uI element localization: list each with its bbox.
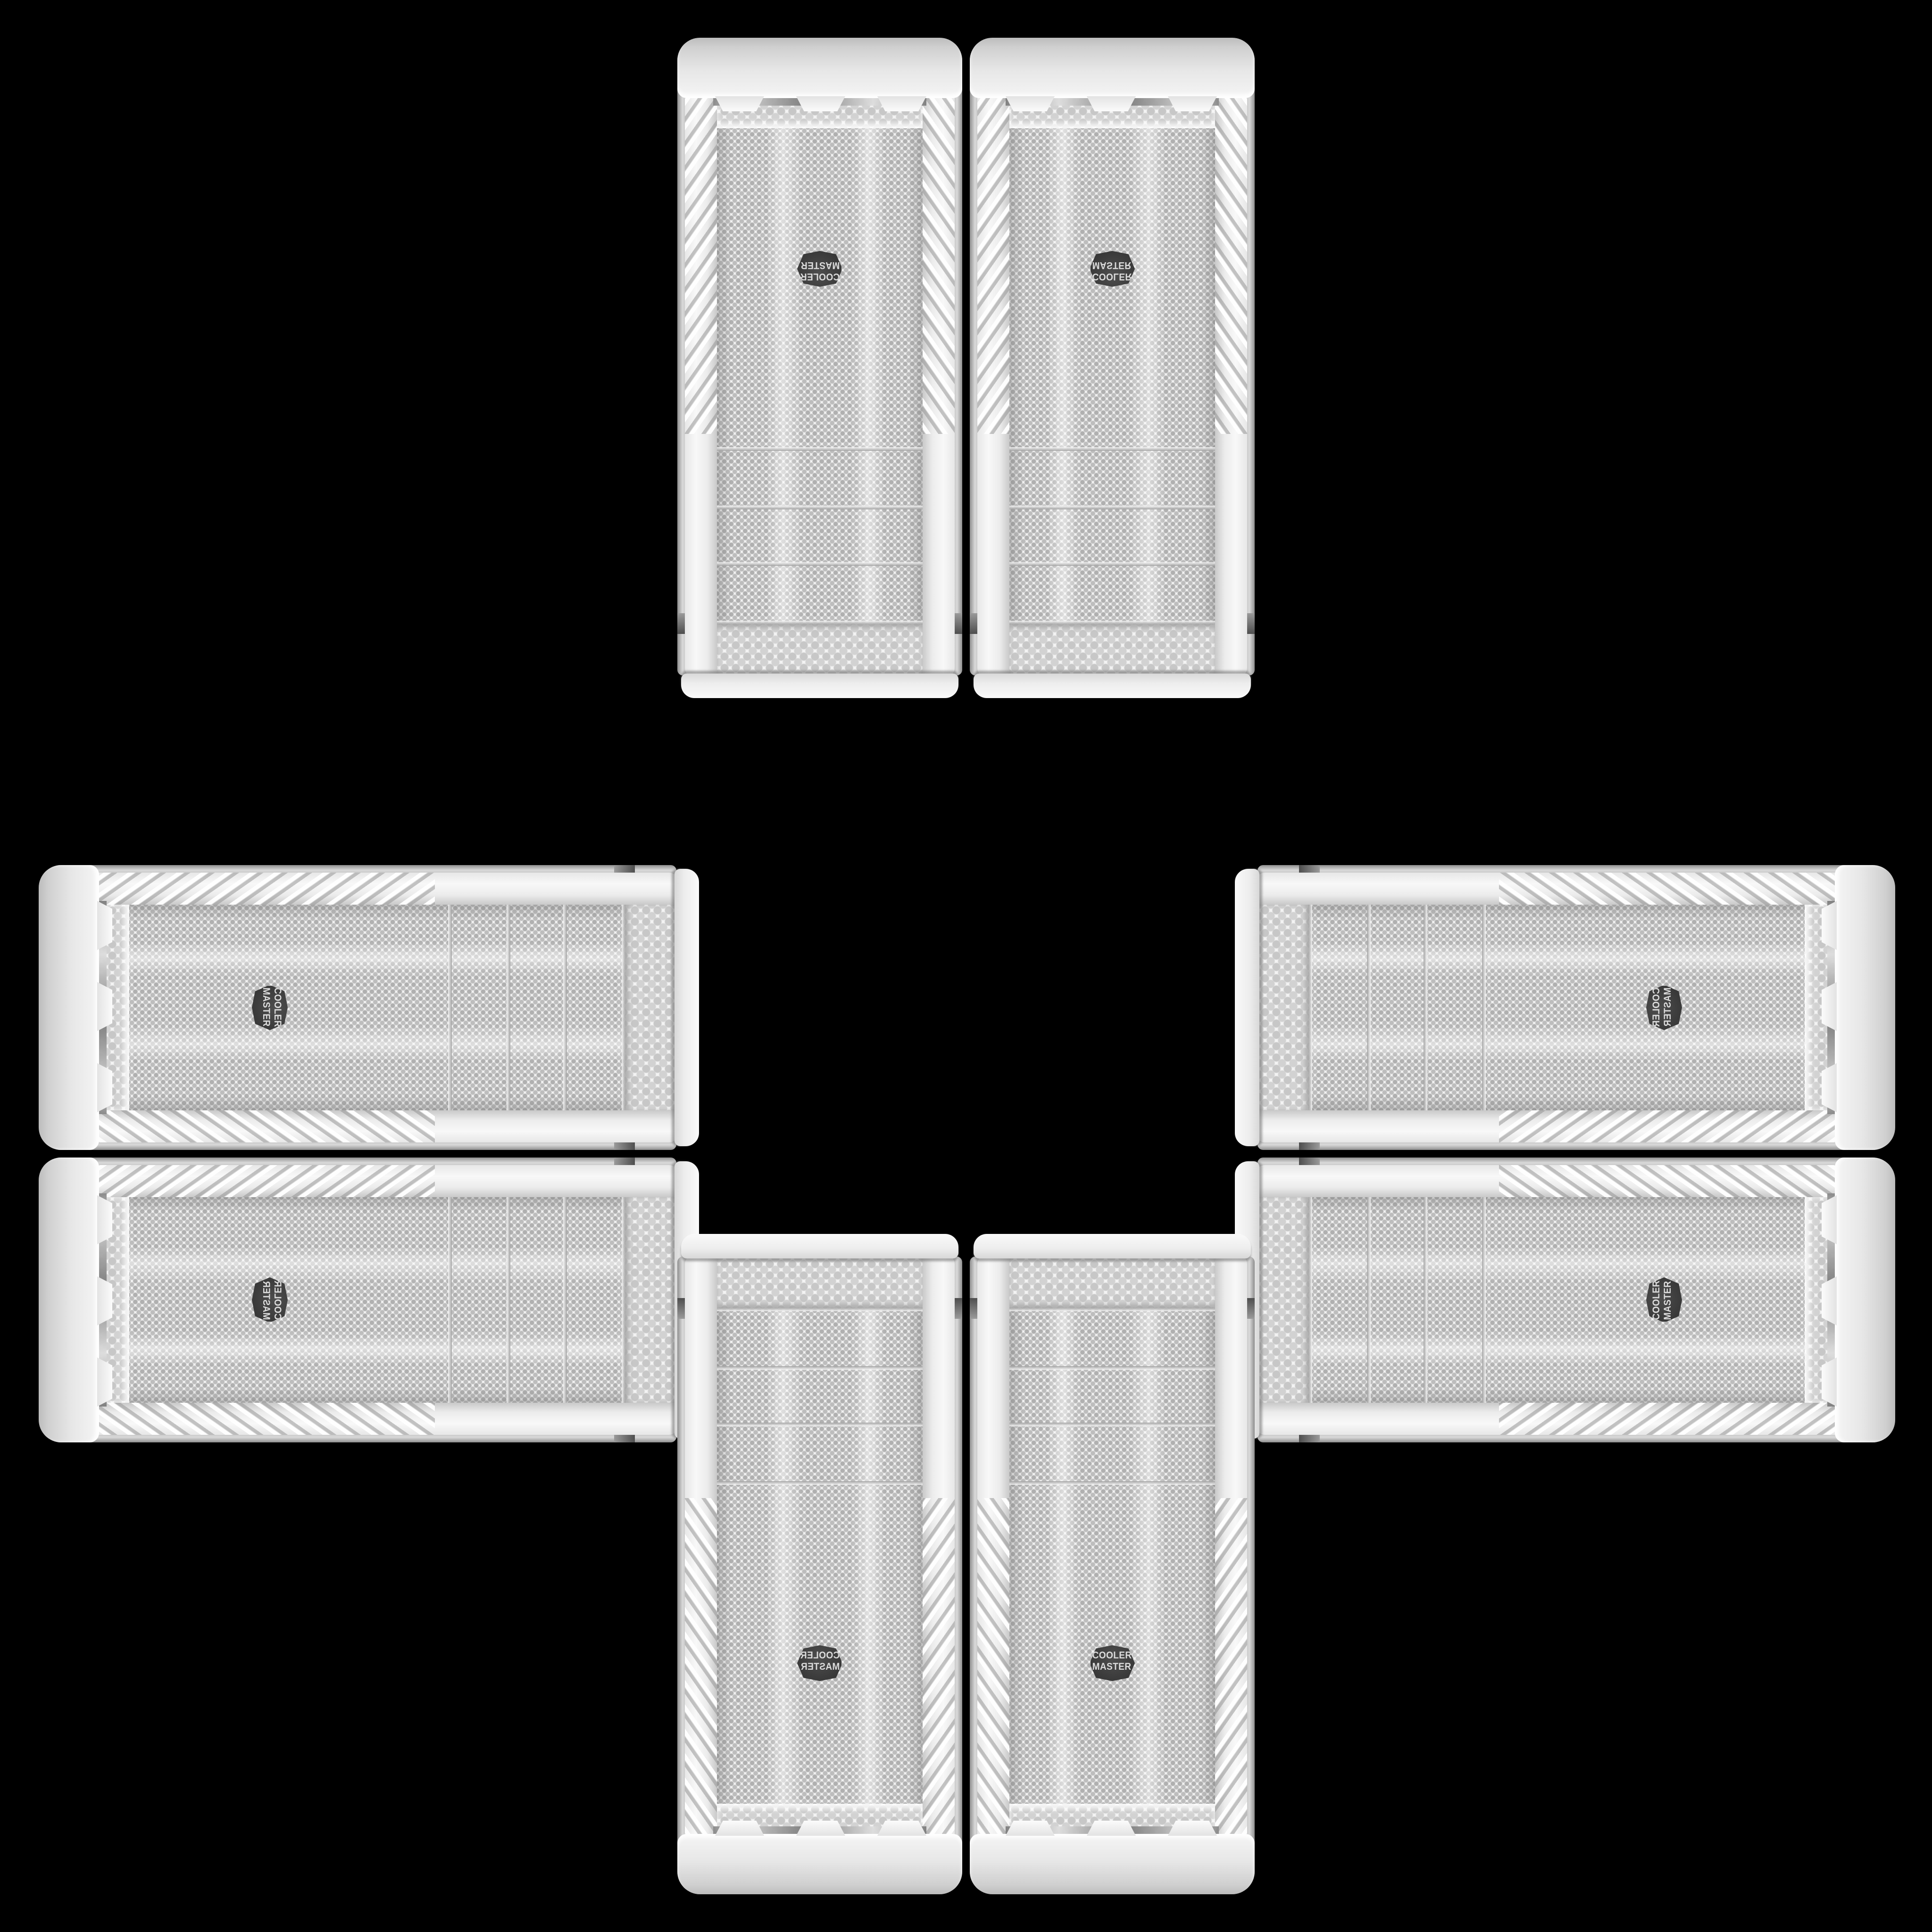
foot-bump [1087, 96, 1136, 111]
top-cap [974, 674, 1251, 698]
front-mesh-panel [1009, 72, 1215, 674]
front-mesh-panel [72, 1197, 674, 1403]
side-rail-right [68, 1165, 677, 1197]
grip-ribs-right [685, 1499, 717, 1862]
case-left-top: COOLER MASTER [38, 677, 698, 962]
pc-case: COOLER MASTER [677, 38, 962, 698]
top-cap [681, 674, 958, 698]
drive-bay-divider [1009, 1423, 1215, 1427]
top-vent-mesh [1009, 625, 1215, 674]
grip-ribs-right [1499, 1165, 1862, 1197]
top-cap [974, 1234, 1251, 1258]
badge-brand-line2: MASTER [800, 1663, 840, 1674]
grip-ribs-left [977, 70, 1009, 433]
case-bottom-right: COOLER MASTER [970, 1234, 1255, 1894]
side-rail-left [68, 873, 677, 905]
side-rail-left [923, 68, 955, 677]
case-left-bottom: COOLER MASTER [38, 970, 698, 1255]
case-right-bottom: COOLER MASTER [1234, 970, 1894, 1255]
drive-bay-divider [1009, 562, 1215, 567]
pc-case: COOLER MASTER [970, 38, 1255, 698]
foot-bump [1821, 1195, 1836, 1244]
drive-bay-divider [717, 1365, 923, 1370]
foot-bump [877, 96, 926, 111]
grip-ribs-left [923, 70, 955, 433]
foot-bump [796, 1821, 845, 1836]
side-rail-right [685, 1255, 717, 1864]
cooler-master-badge-icon: COOLER MASTER [251, 1277, 287, 1323]
grip-ribs-right [1215, 70, 1247, 433]
cooler-master-badge-icon: COOLER MASTER [1090, 1645, 1135, 1681]
drive-bay-divider [1009, 1307, 1215, 1312]
top-vent-mesh [625, 1197, 674, 1403]
drive-bay-divider [717, 1480, 923, 1485]
badge-brand-line2: MASTER [1093, 1663, 1132, 1674]
drive-bay-divider [1009, 505, 1215, 509]
foot-bump [96, 1195, 111, 1244]
grip-ribs-left [70, 1403, 433, 1435]
drive-bay-divider [1307, 1197, 1312, 1403]
foot-bump [1821, 1276, 1836, 1325]
pc-case: COOLER MASTER [970, 1234, 1255, 1894]
top-vent-mesh [1258, 1197, 1307, 1403]
foot-bump [1087, 1821, 1136, 1836]
foot-bump [1168, 96, 1217, 111]
foot-bump [96, 901, 111, 950]
pc-case: COOLER MASTER [38, 1158, 698, 1442]
foot-bump [1006, 96, 1055, 111]
bottom-foot-bezel [38, 1158, 98, 1442]
top-vent-mesh [717, 1258, 923, 1307]
side-rail-left [68, 1403, 677, 1435]
side-rail-right [1215, 68, 1247, 677]
grip-ribs-right [685, 70, 717, 433]
cooler-master-badge-icon: COOLER MASTER [1645, 1277, 1681, 1323]
top-cap [681, 1234, 958, 1258]
badge-brand-line1: COOLER [1652, 1280, 1663, 1320]
foot-bump [1821, 1357, 1836, 1407]
grip-ribs-right [70, 1165, 433, 1197]
drive-bay-divider [1009, 447, 1215, 452]
drive-bay-divider [1423, 1197, 1427, 1403]
badge-brand-line2: MASTER [258, 1281, 269, 1320]
cooler-master-badge-icon: COOLER MASTER [1090, 251, 1135, 287]
drive-bay-divider [1009, 620, 1215, 625]
drive-bay-divider [717, 1307, 923, 1312]
drive-bay-divider [717, 447, 923, 452]
side-rail-left [1255, 1403, 1864, 1435]
front-mesh-panel [717, 1258, 923, 1860]
drive-bay-divider [505, 1197, 509, 1403]
drive-bay-divider [1480, 1197, 1485, 1403]
foot-bump [96, 1357, 111, 1407]
case-top-left: COOLER MASTER [677, 38, 962, 698]
bottom-foot-bezel [970, 1834, 1255, 1894]
side-rail-left [977, 68, 1009, 677]
drive-bay-divider [717, 505, 923, 509]
side-rail-left [923, 1255, 955, 1864]
grip-ribs-left [1499, 873, 1862, 905]
foot-bump [1006, 1821, 1055, 1836]
case-bottom-left: COOLER MASTER [677, 1234, 962, 1894]
foot-bump [1168, 1821, 1217, 1836]
case-right-top: COOLER MASTER [1234, 677, 1894, 962]
pc-case: COOLER MASTER [1234, 1158, 1894, 1442]
side-rail-right [1215, 1255, 1247, 1864]
drive-bay-divider [717, 620, 923, 625]
grip-ribs-left [977, 1499, 1009, 1862]
bottom-foot-bezel [970, 38, 1255, 98]
foot-bump [715, 96, 764, 111]
drive-bay-divider [1009, 1480, 1215, 1485]
drive-bay-divider [620, 1197, 625, 1403]
bottom-foot-bezel [677, 1834, 962, 1894]
cooler-master-badge-icon: COOLER MASTER [797, 1645, 842, 1681]
pc-case: COOLER MASTER [677, 1234, 962, 1894]
bottom-foot-bezel [1834, 1158, 1894, 1442]
foot-bump [1821, 901, 1836, 950]
grip-ribs-right [1215, 1499, 1247, 1862]
front-mesh-panel [1258, 1197, 1860, 1403]
foot-bump [715, 1821, 764, 1836]
grip-ribs-left [70, 873, 433, 905]
grip-ribs-left [1499, 1403, 1862, 1435]
page: { "canvas": { "width": 4096, "height": 4… [0, 0, 1932, 1932]
product-collage-stage: COOLER MASTER COOLER MASTER [0, 0, 1932, 1932]
top-vent-mesh [717, 625, 923, 674]
drive-bay-divider [717, 1423, 923, 1427]
badge-brand-line2: MASTER [800, 258, 840, 269]
drive-bay-divider [1009, 1365, 1215, 1370]
bottom-foot-bezel [677, 38, 962, 98]
side-rail-left [1255, 873, 1864, 905]
top-vent-mesh [1009, 1258, 1215, 1307]
foot-bump [796, 96, 845, 111]
side-rail-left [977, 1255, 1009, 1864]
drive-bay-divider [1365, 1197, 1370, 1403]
side-rail-right [1255, 1165, 1864, 1197]
side-rail-right [685, 68, 717, 677]
badge-brand-line2: MASTER [1663, 1281, 1674, 1320]
drive-bay-divider [717, 562, 923, 567]
foot-bump [96, 1276, 111, 1325]
front-mesh-panel [717, 72, 923, 674]
grip-ribs-left [923, 1499, 955, 1862]
drive-bay-divider [562, 1197, 567, 1403]
badge-brand-line2: MASTER [1093, 258, 1132, 269]
front-mesh-panel [1009, 1258, 1215, 1860]
cooler-master-badge-icon: COOLER MASTER [797, 251, 842, 287]
foot-bump [877, 1821, 926, 1836]
case-top-right: COOLER MASTER [970, 38, 1255, 698]
drive-bay-divider [447, 1197, 452, 1403]
